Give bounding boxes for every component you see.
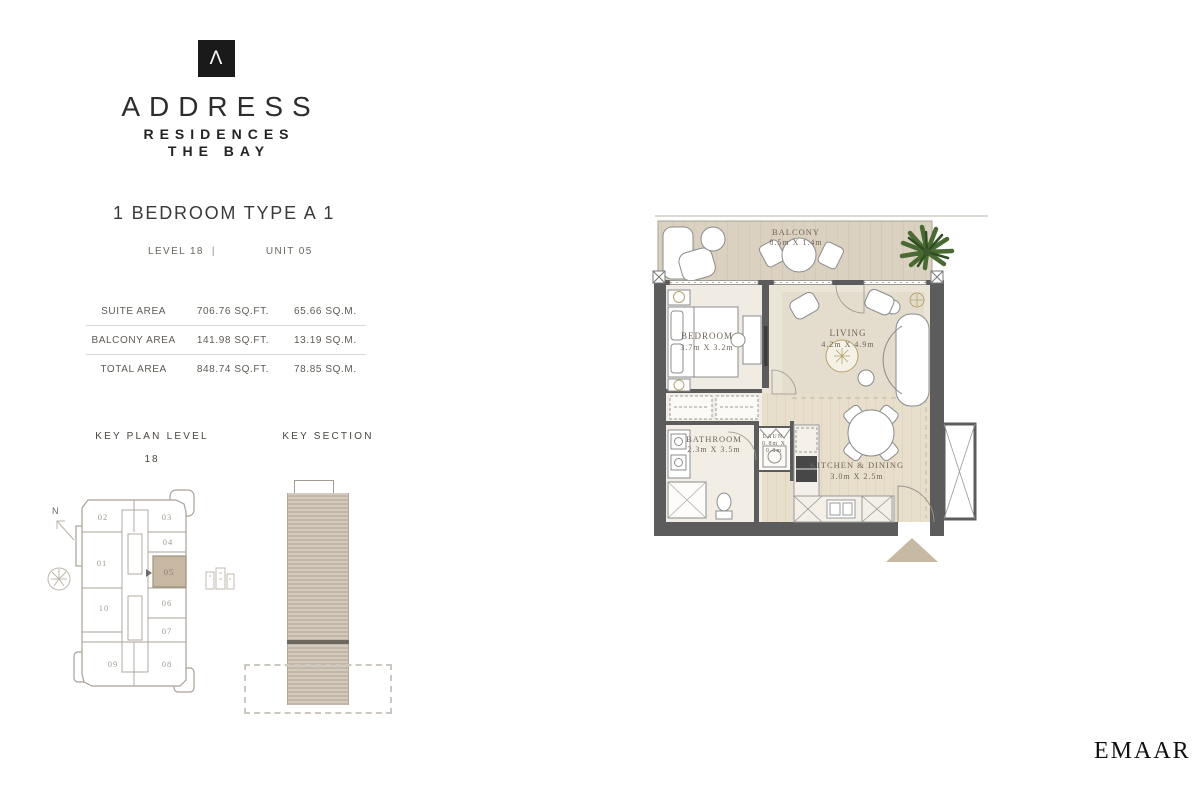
floor-plan: BALCONY 8.5m X 1.4m BEDROOM 3.7m X 3.2m … xyxy=(650,208,995,568)
emaar-logo: EMAAR xyxy=(1094,738,1191,765)
unit-04: 04 xyxy=(163,537,174,547)
total-area-label: TOTAL AREA xyxy=(86,364,181,375)
balcony-area-sqft: 141.98 SQ.FT. xyxy=(181,335,285,346)
total-area-sqft: 848.74 SQ.FT. xyxy=(181,364,285,375)
bathroom-dim: 2.3m X 3.5m xyxy=(687,445,740,454)
entry-arrow-icon xyxy=(886,538,938,562)
suite-area-sqft: 706.76 SQ.FT. xyxy=(181,306,285,317)
kitchen-sink xyxy=(827,500,855,518)
address-logo-icon: Λ xyxy=(198,40,235,77)
unit-07: 07 xyxy=(162,626,173,636)
unit-subtitle: LEVEL 18 | UNIT 05 xyxy=(148,246,313,257)
bathroom-label: BATHROOM xyxy=(686,434,742,444)
brand-name: ADDRESS xyxy=(110,91,322,123)
brochure-page: Λ ADDRESS RESIDENCES THE BAY 1 BEDROOM T… xyxy=(0,0,1199,800)
unit-06: 06 xyxy=(162,598,173,608)
unit-05: 05 xyxy=(164,567,175,577)
key-plan-title: KEY PLAN LEVEL xyxy=(72,431,232,442)
level-unit-divider: | xyxy=(212,246,216,257)
balcony-area-sqm: 13.19 SQ.M. xyxy=(285,335,366,346)
unit-10: 10 xyxy=(99,603,110,613)
bedroom-label: BEDROOM xyxy=(681,331,733,341)
palm-landmark-icon xyxy=(48,568,70,590)
suite-area-label: SUITE AREA xyxy=(86,306,181,317)
key-plan-level: 18 xyxy=(72,454,232,465)
city-landmark-icon xyxy=(206,568,234,589)
north-label: N xyxy=(52,506,59,516)
table-row-suite: SUITE AREA 706.76 SQ.FT. 65.66 SQ.M. xyxy=(86,297,366,325)
dining-set xyxy=(842,404,900,463)
kitchen-dim: 3.0m X 2.5m xyxy=(830,472,883,481)
toilet xyxy=(716,493,732,519)
page-title: 1 BEDROOM TYPE A 1 xyxy=(113,203,335,224)
brand-block: Λ ADDRESS RESIDENCES THE BAY xyxy=(110,40,322,159)
laundry-dim1: 0.8m X xyxy=(762,441,786,447)
living-dim: 4.2m X 4.9m xyxy=(821,340,874,349)
suite-area-sqm: 65.66 SQ.M. xyxy=(285,306,366,317)
unit-02: 02 xyxy=(98,512,109,522)
key-section-title: KEY SECTION xyxy=(262,431,394,442)
living-label: LIVING xyxy=(830,328,867,338)
unit-08: 08 xyxy=(162,659,173,669)
balcony-label: BALCONY xyxy=(772,227,820,237)
kitchen-label: KITCHEN & DINING xyxy=(810,460,904,470)
area-table: SUITE AREA 706.76 SQ.FT. 65.66 SQ.M. BAL… xyxy=(86,297,366,383)
brand-the-bay: THE BAY xyxy=(110,143,322,159)
unit-03: 03 xyxy=(162,512,173,522)
bedroom-dim: 3.7m X 3.2m xyxy=(680,343,733,352)
total-area-sqm: 78.85 SQ.M. xyxy=(285,364,366,375)
level-label: LEVEL 18 xyxy=(148,246,204,257)
laundry-label: LAUN. xyxy=(762,434,785,440)
table-row-total: TOTAL AREA 848.74 SQ.FT. 78.85 SQ.M. xyxy=(86,354,366,383)
bedroom-desk xyxy=(743,316,761,364)
laundry-dim2: 0.8m xyxy=(766,448,782,454)
key-section-diagram xyxy=(242,476,392,718)
window-strip xyxy=(670,281,926,285)
balcony-dim: 8.5m X 1.4m xyxy=(769,238,822,247)
unit-number-label: UNIT 05 xyxy=(266,246,313,257)
balcony-area-label: BALCONY AREA xyxy=(86,335,181,346)
north-arrow-icon: N xyxy=(52,506,74,540)
unit-01: 01 xyxy=(97,558,108,568)
tower-level-marker xyxy=(287,640,349,644)
tv xyxy=(764,326,768,366)
key-plan-building xyxy=(74,490,194,692)
key-plan-diagram: N xyxy=(36,476,240,711)
tower-podium-outline xyxy=(244,664,392,714)
unit-09: 09 xyxy=(108,659,119,669)
logo-letter: Λ xyxy=(210,48,223,70)
sofa xyxy=(896,314,929,406)
brand-residences: RESIDENCES xyxy=(110,126,322,142)
table-row-balcony: BALCONY AREA 141.98 SQ.FT. 13.19 SQ.M. xyxy=(86,325,366,354)
